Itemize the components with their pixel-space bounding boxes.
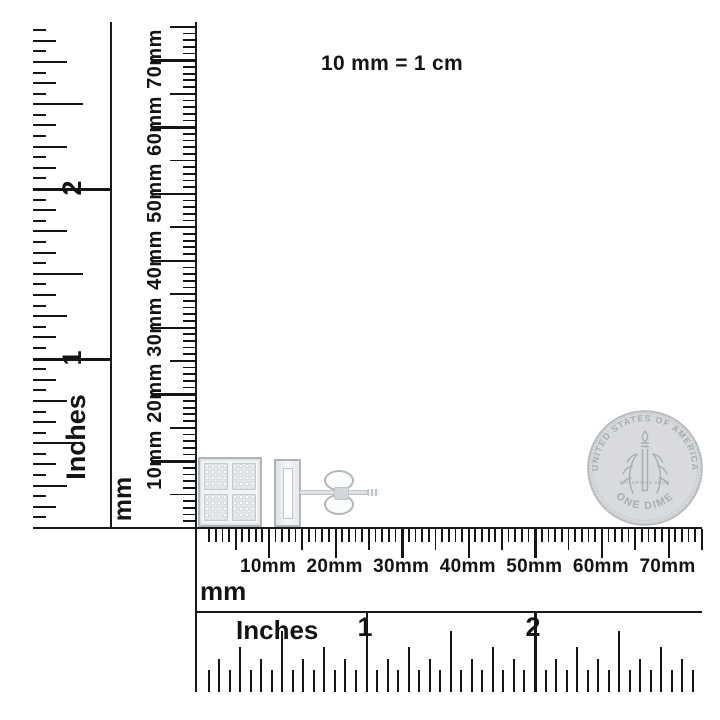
earring-side-view [274,459,301,527]
inch-tick [229,670,231,692]
mm-tick [301,529,303,550]
inch-tick [33,389,46,391]
inch-tick [513,659,515,692]
inch-tick [33,326,46,328]
mm-tick [701,529,703,550]
inch-tick [302,659,304,692]
mm-tick [183,480,196,482]
mm-tick [183,373,196,375]
inch-tick [33,262,46,264]
inch-tick [33,167,56,169]
inch-tick [344,659,346,692]
mm-tick-label: 10mm [238,556,298,578]
inch-tick [450,631,452,692]
mm-tick [641,529,643,542]
mm-tick [281,529,283,542]
inch-tick [33,72,46,74]
inch-tick [33,252,56,254]
mm-tick [183,313,196,315]
mm-tick [668,529,670,558]
mm-tick [381,529,383,542]
butterfly-back [321,470,359,516]
mm-tick [183,447,196,449]
mm-tick-label: 30mm [371,556,431,578]
mm-tick [581,529,583,542]
mm-tick [588,529,590,542]
inch-numeral: 2 [54,170,90,206]
inch-tick [33,50,46,52]
inch-tick [681,659,683,692]
mm-tick [170,160,196,162]
mm-tick [183,273,196,275]
mm-tick [255,529,257,542]
mm-tick [183,333,196,335]
mm-tick [183,434,196,436]
inch-tick [33,40,56,42]
mm-tick [183,487,196,489]
mm-tick [183,240,196,242]
pave-diamond-quadrant [204,463,228,490]
mm-tick-label: 20mm [305,556,365,578]
inch-tick [566,670,568,692]
inch-tick [523,670,525,692]
inch-tick [639,659,641,692]
mm-tick [183,146,196,148]
mm-tick [568,529,570,550]
mm-tick [183,507,196,509]
inch-tick [408,647,410,692]
mm-tick [688,529,690,542]
inch-tick [555,659,557,692]
mm-tick [183,153,196,155]
pave-diamond-quadrant [232,463,256,490]
inch-tick [33,230,67,232]
mm-tick [183,246,196,248]
mm-tick [681,529,683,542]
mm-tick [408,529,410,542]
mm-tick [534,529,536,558]
mm-tick [561,529,563,542]
mm-tick [183,287,196,289]
mm-tick [455,529,457,542]
inch-tick [33,29,46,31]
inch-tick [33,485,67,487]
inch-tick [692,670,694,692]
mm-tick [601,529,603,558]
vertical-mm-unit-label: mm [109,469,135,529]
mm-tick [183,420,196,422]
mm-tick [335,529,337,558]
mm-tick [183,113,196,115]
mm-tick [428,529,430,542]
mm-tick [395,529,397,542]
mm-tick [654,529,656,542]
inch-tick [33,495,46,497]
mm-tick [183,213,196,215]
mm-tick [183,280,196,282]
inch-tick [323,647,325,692]
mm-tick [183,39,196,41]
bottom-mm-unit-label: mm [200,576,246,607]
inch-tick [281,631,283,692]
mm-tick [208,529,210,542]
mm-tick [368,529,370,550]
mm-tick [170,93,196,95]
inch-tick [33,220,46,222]
inch-tick [460,670,462,692]
mm-tick [341,529,343,542]
mm-tick [183,140,196,142]
mm-tick [474,529,476,542]
mm-tick [548,529,550,542]
mm-tick [621,529,623,542]
butterfly-back-plate [334,487,349,500]
inch-tick [33,315,67,317]
mm-tick [594,529,596,542]
mm-tick [183,474,196,476]
mm-tick [183,500,196,502]
inch-numeral: 1 [345,612,385,643]
mm-tick-label: 60mm [571,556,631,578]
mm-tick [521,529,523,542]
inch-tick [33,241,46,243]
mm-tick [183,400,196,402]
mm-tick [183,180,196,182]
inch-tick [33,474,46,476]
inch-tick [587,670,589,692]
inch-tick [576,647,578,692]
earring-post-tip [367,489,379,496]
inch-tick [334,670,336,692]
inch-tick [33,177,46,179]
mm-tick [614,529,616,542]
mm-tick [183,53,196,55]
mm-tick [481,529,483,542]
mm-tick-label: 70mm [638,556,698,578]
mm-tick-label: 50mm [504,556,564,578]
jewelry-size-reference-image: 10 mm = 1 cm Inches mm mm Inches [0,0,720,720]
inch-tick [271,670,273,692]
inch-tick [33,124,56,126]
inch-tick [33,432,46,434]
mm-tick [183,120,196,122]
inch-tick [33,156,46,158]
mm-tick [183,186,196,188]
mm-tick [541,529,543,542]
mm-tick [501,529,503,550]
inch-tick [33,453,46,455]
mm-tick [170,427,196,429]
mm-tick [183,206,196,208]
mm-tick [248,529,250,542]
inch-tick [33,114,46,116]
inch-tick [292,670,294,692]
mm-tick [275,529,277,542]
inch-tick [481,670,483,692]
mm-tick [288,529,290,542]
mm-tick [421,529,423,542]
mm-tick [183,340,196,342]
inch-tick [545,670,547,692]
mm-tick [268,529,270,558]
mm-tick [183,353,196,355]
inch-tick [355,670,357,692]
vertical-mm-ruler-line [195,22,197,692]
mm-tick [574,529,576,542]
inch-tick [418,670,420,692]
inch-tick [33,347,46,349]
mm-tick [608,529,610,542]
mm-tick [415,529,417,542]
mm-tick [183,267,196,269]
inch-tick [239,647,241,692]
mm-tick-label: 40mm [438,556,498,578]
mm-tick [183,387,196,389]
mm-tick [308,529,310,542]
inch-tick [33,516,46,518]
inch-tick [608,670,610,692]
inch-tick [250,670,252,692]
mm-tick [488,529,490,542]
mm-tick-label: 70mm [143,19,167,99]
mm-tick [183,79,196,81]
mm-tick [648,529,650,542]
inch-tick [33,283,46,285]
mm-tick [183,73,196,75]
mm-tick [183,173,196,175]
pave-diamond-quadrant [232,494,256,521]
inch-tick [429,659,431,692]
mm-tick [628,529,630,542]
inch-tick [33,368,46,370]
mm-tick [435,529,437,550]
mm-tick [170,293,196,295]
inch-tick [439,670,441,692]
coin-motto: E PLURIBUS UNUM [620,480,670,485]
inch-tick [671,670,673,692]
mm-tick [183,367,196,369]
mm-tick [661,529,663,542]
mm-tick [441,529,443,542]
mm-tick [183,200,196,202]
mm-tick [315,529,317,542]
mm-tick [375,529,377,542]
inch-tick [33,146,67,148]
inch-tick [33,294,56,296]
mm-tick [228,529,230,542]
inch-tick [376,670,378,692]
inch-tick [471,659,473,692]
inch-tick [33,61,67,63]
mm-tick [508,529,510,542]
mm-tick [328,529,330,542]
earring-side-slot [283,468,293,519]
vertical-inches-unit-label: Inches [61,381,91,493]
inch-tick [502,670,504,692]
inch-tick [387,659,389,692]
mm-tick [183,86,196,88]
mm-tick [170,360,196,362]
inch-tick [618,631,620,692]
mm-tick [170,226,196,228]
mm-tick [183,300,196,302]
mm-tick [170,494,196,496]
mm-tick [634,529,636,550]
mm-tick [361,529,363,542]
mm-tick [401,529,403,558]
mm-tick [235,529,237,550]
mm-tick [183,467,196,469]
inch-tick [33,82,56,84]
mm-tick [295,529,297,542]
mm-tick [448,529,450,542]
mm-tick [183,233,196,235]
inch-tick [33,135,46,137]
inch-tick [33,400,67,402]
mm-tick [261,529,263,542]
mm-tick [183,46,196,48]
inch-tick [33,209,56,211]
mm-tick [183,100,196,102]
inch-tick [33,199,46,201]
mm-tick [183,133,196,135]
mm-tick [183,66,196,68]
inch-tick [33,305,46,307]
mm-tick [183,307,196,309]
mm-tick [215,529,217,542]
mm-tick [183,220,196,222]
mm-tick [183,407,196,409]
inch-tick [218,659,220,692]
mm-tick [183,320,196,322]
mm-tick [183,166,196,168]
inch-tick [629,670,631,692]
inch-tick [33,379,56,381]
mm-tick [183,33,196,35]
mm-tick [554,529,556,542]
mm-tick [494,529,496,542]
inch-tick [597,659,599,692]
mm-tick [674,529,676,542]
mm-tick [170,26,196,28]
mm-tick [183,380,196,382]
inch-tick [33,421,56,423]
mm-tick [461,529,463,542]
mm-tick [348,529,350,542]
bottom-inches-ruler-line [195,611,702,613]
mm-tick [183,347,196,349]
inch-tick [33,506,56,508]
inch-tick [313,670,315,692]
bottom-inches-unit-label: Inches [236,615,318,646]
inch-tick [660,647,662,692]
mm-tick [388,529,390,542]
mm-tick [694,529,696,542]
mm-tick [241,529,243,542]
inch-tick [260,659,262,692]
vertical-inches-ruler-line [110,22,112,528]
inch-numeral: 1 [54,340,90,376]
inch-tick [33,336,56,338]
mm-tick [183,514,196,516]
mm-tick [222,529,224,542]
inch-tick [33,463,56,465]
mm-tick [183,440,196,442]
dime-coin: UNITED STATES OF AMERICA ONE DIME E PLUR… [586,409,704,527]
inch-tick [33,93,46,95]
inch-tick [650,670,652,692]
pave-diamond-quadrant [204,494,228,521]
earring-front-view [198,457,262,527]
mm-tick [528,529,530,542]
inch-tick [33,411,46,413]
mm-tick [514,529,516,542]
mm-tick [321,529,323,542]
inch-tick [33,442,83,444]
mm-tick [183,413,196,415]
inch-tick [33,103,83,105]
inch-tick [397,670,399,692]
mm-tick [355,529,357,542]
mm-tick [183,454,196,456]
mm-tick [183,253,196,255]
inch-tick [492,647,494,692]
inch-tick [208,670,210,692]
inch-tick [33,273,83,275]
mm-tick [183,520,196,522]
mm-tick [183,106,196,108]
inch-numeral: 2 [513,612,553,643]
scale-note: 10 mm = 1 cm [292,52,492,76]
mm-tick [468,529,470,558]
